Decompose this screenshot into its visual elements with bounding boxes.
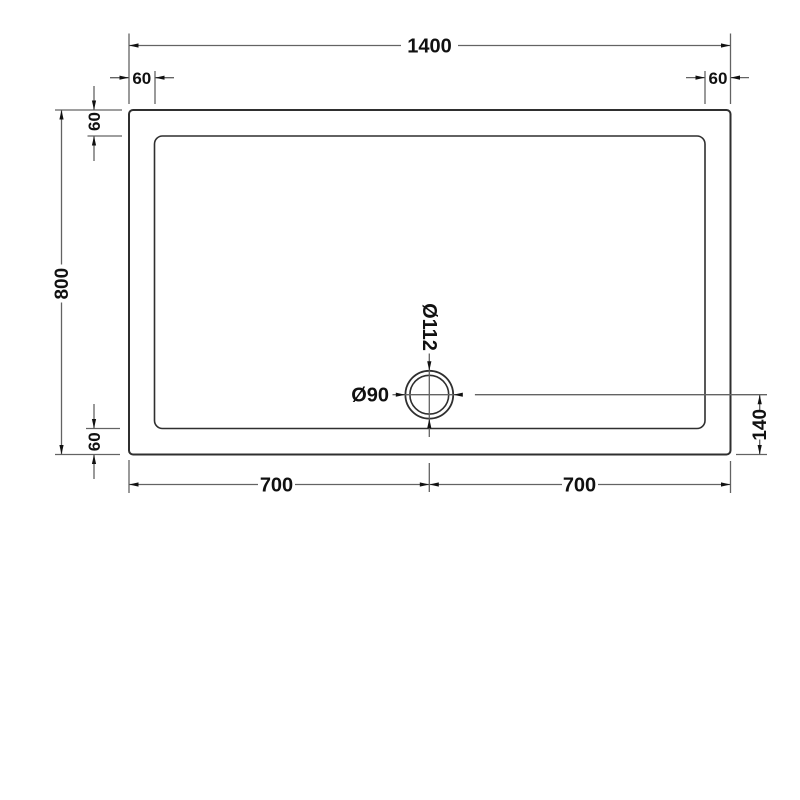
svg-text:Ø90: Ø90 [351,385,389,407]
svg-text:1400: 1400 [407,36,452,58]
svg-text:60: 60 [132,69,151,88]
svg-text:60: 60 [709,69,728,88]
svg-text:60: 60 [85,112,104,131]
svg-text:60: 60 [85,432,104,451]
svg-text:700: 700 [260,475,293,497]
svg-text:Ø112: Ø112 [418,303,440,351]
svg-text:800: 800 [52,268,73,300]
svg-text:140: 140 [750,409,771,441]
svg-text:700: 700 [563,475,596,497]
